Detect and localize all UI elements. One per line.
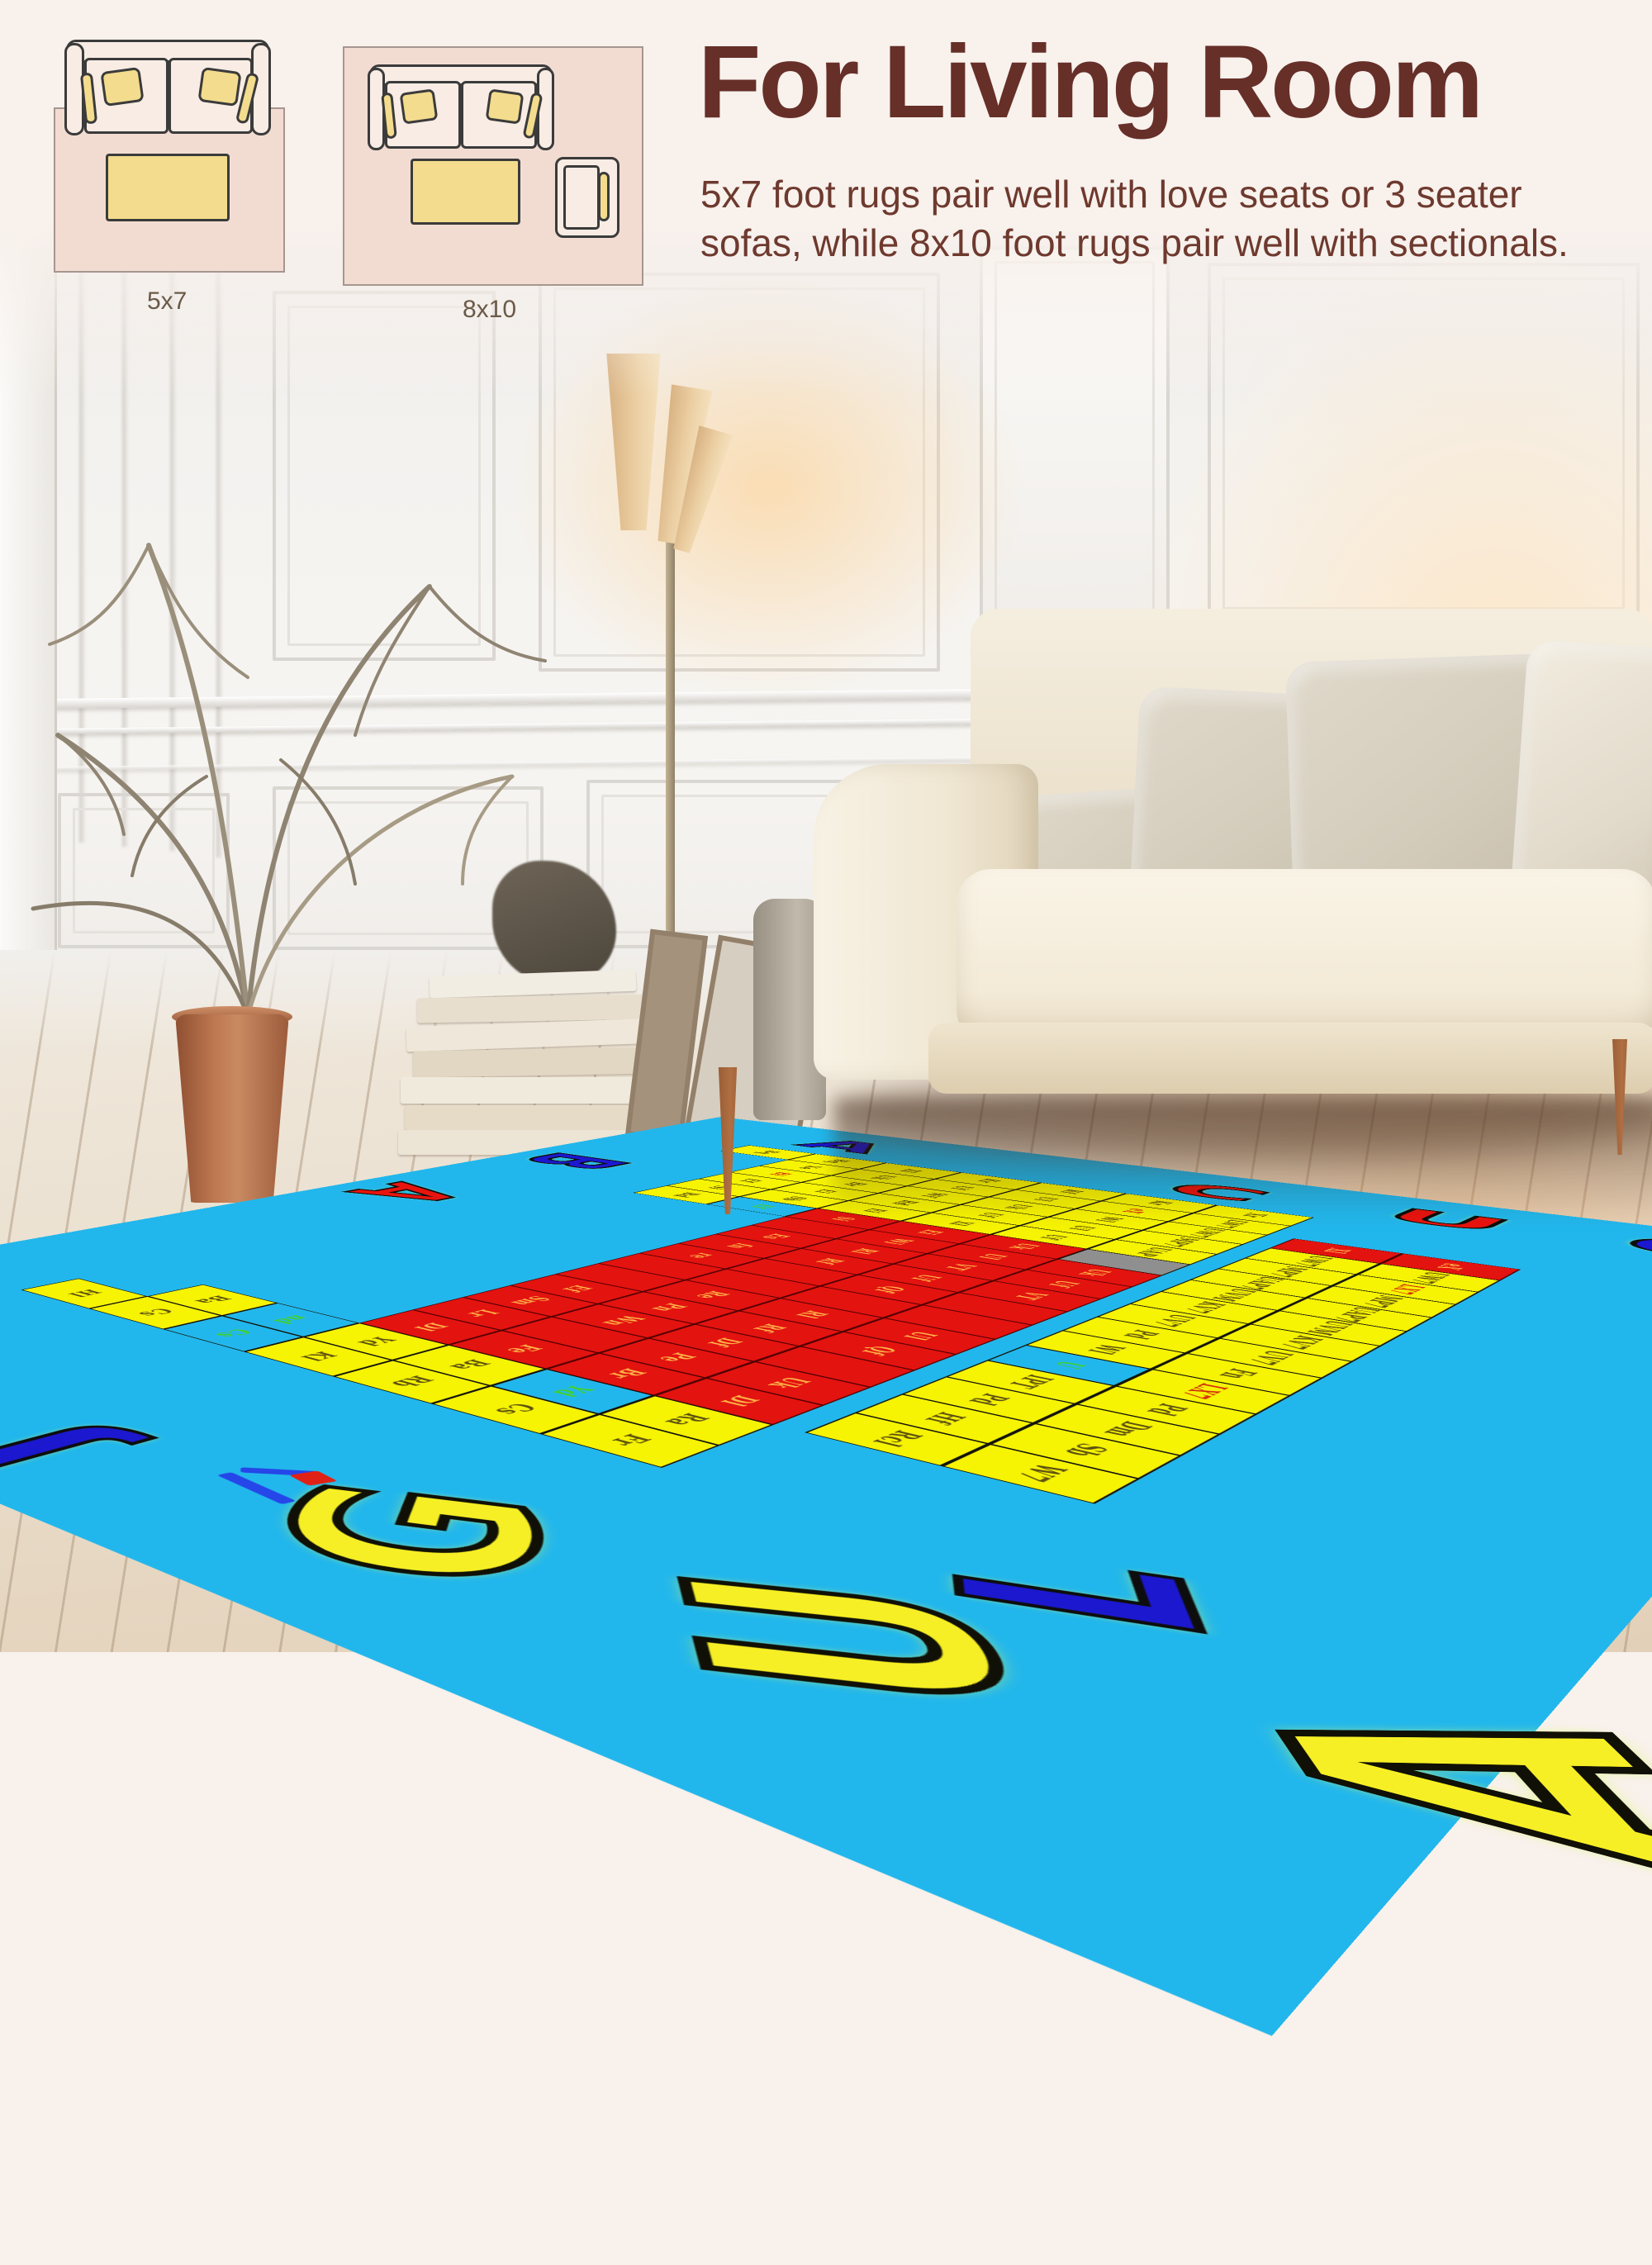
sofa-base (928, 1023, 1652, 1094)
sofa-seat-cushion (957, 869, 1652, 1044)
diagram-coffee-table (411, 159, 520, 225)
rug-alphabet-letter-B: B (503, 1150, 647, 1173)
rug-cell-symbol: Uk (759, 1375, 816, 1390)
rug-cell-symbol: KV7 (1175, 1299, 1232, 1314)
book (417, 995, 653, 1023)
rug-alphabet-letter-A: A (330, 1179, 485, 1207)
book (401, 1077, 661, 1104)
plant-pot (175, 1014, 289, 1203)
rug-cell-symbol: Pe (650, 1351, 701, 1364)
rug-cell-symbol: Pd (1114, 1328, 1165, 1341)
rug-cell-symbol: Fn (1209, 1366, 1264, 1381)
rug-cell-symbol: Wl (1079, 1342, 1131, 1356)
rug-cell-symbol: Uk (1002, 1242, 1044, 1251)
rug-cell-symbol: Dl (406, 1321, 453, 1332)
rug-cell-symbol: Ul (895, 1330, 943, 1342)
description-line-2: sofas, while 8x10 foot rugs pair well wi… (700, 219, 1569, 268)
rug-cell-symbol: Ba (442, 1357, 496, 1372)
diagram-pillow (400, 88, 439, 124)
rug-cell-symbol: Ef (555, 1284, 597, 1294)
rug-cell-symbol: Fe (498, 1342, 548, 1356)
rug-cell-symbol: Cs (131, 1307, 178, 1318)
rug-cell-symbol: Pd (959, 1391, 1016, 1408)
description-text: 5x7 foot rugs pair well with love seats … (700, 170, 1569, 268)
rug-cell-symbol: Df (699, 1336, 748, 1348)
diagram-armchair-bolster (598, 172, 610, 221)
rug-alphabet-letter-J: J (0, 1417, 139, 1483)
rug-cell-symbol: Sb (1054, 1441, 1116, 1460)
rug-cell-symbol: Es (756, 1232, 795, 1241)
rug-cell-symbol: Rf (744, 1322, 791, 1333)
rug-cell-symbol: Bi (764, 1171, 796, 1177)
rug-cell-symbol: Pn (644, 1302, 692, 1313)
page-title: For Living Room (698, 23, 1481, 141)
rug-cell-symbol: Wn (595, 1313, 649, 1327)
rug-cell-symbol: Qf (852, 1344, 903, 1357)
rug-cell-symbol: Lr (458, 1308, 503, 1318)
diagram-pillow (197, 67, 241, 107)
rug-cell-symbol: UV7 (1238, 1348, 1299, 1366)
book (413, 1047, 657, 1077)
rug-cell-symbol: Uk (1071, 1268, 1117, 1278)
rug-cell-symbol: Rl (788, 1309, 833, 1320)
rug-cell-symbol: Ei (911, 1228, 948, 1236)
description-line-1: 5x7 foot rugs pair well with love seats … (700, 170, 1569, 219)
rug-cell-symbol: Ba (188, 1294, 235, 1306)
rug-cell-symbol: Yd (350, 1335, 401, 1348)
diagram-label-8x10: 8x10 (463, 296, 516, 324)
floor-lamp-pole (666, 535, 675, 942)
rug-cell-symbol: Sb (776, 1195, 812, 1202)
rug-cell-symbol: Rl (844, 1247, 884, 1256)
rug-cell-symbol: UAP (1127, 1246, 1176, 1257)
rug-cell-symbol: UV7 (1143, 1313, 1201, 1328)
rug-cell-symbol: Rcl (862, 1427, 929, 1449)
diagram-label-5x7: 5x7 (147, 287, 187, 316)
rug-cell-symbol: re (681, 1251, 720, 1260)
rug-cell-symbol: IPT (999, 1372, 1061, 1390)
rug-cell-symbol: Sm (504, 1294, 555, 1307)
diagram-armchair-seat (563, 165, 600, 230)
book (405, 1105, 661, 1130)
rug-cell-symbol: Bq (752, 1150, 784, 1155)
diagram-pillow (100, 67, 144, 107)
rug-cell-symbol: LX7 (1379, 1283, 1431, 1296)
rug-cell-symbol: eX (1428, 1262, 1471, 1271)
rug-cell-symbol: Kl (293, 1350, 342, 1363)
rug-cell-symbol: Qf (866, 1284, 910, 1294)
rug-cell-symbol: U (1045, 1359, 1091, 1370)
rug-cell-symbol: Ef (744, 1204, 779, 1210)
rug-cell-symbol: VT (1006, 1290, 1053, 1302)
periodic-table-rug: HlBqCsBaBdSiEfBiXeBqCsndEfSbEiBrUkXlKlYd… (0, 1117, 1652, 2036)
rug-cell-symbol: KV7 (1270, 1333, 1329, 1351)
rug-cell-symbol: Hl (62, 1288, 106, 1298)
rug-cell-symbol: Re (688, 1289, 734, 1300)
rug-cell-symbol: Ul (971, 1252, 1012, 1261)
rug-cell-symbol: Yd (544, 1383, 599, 1398)
rug-cell-symbol: Xe (792, 1165, 825, 1170)
rug-cell-symbol: Uf (1041, 1279, 1085, 1289)
rug-cell-symbol: W7 (1004, 1461, 1074, 1485)
rug-cell-symbol: VT (937, 1262, 980, 1272)
header-banner: 5x7 8x10 For Living Room 5x7 foot rugs p… (0, 0, 1652, 396)
rug-cell-symbol: Wi (876, 1237, 918, 1246)
rug-cell-symbol: Rf (808, 1257, 848, 1266)
rug-cell-symbol: Uf (904, 1273, 947, 1283)
rug-cell-symbol: Ef (733, 1178, 766, 1184)
rug-cell-symbol: Hf (914, 1409, 972, 1427)
diagram-pillow (486, 88, 525, 124)
rug-cell-symbol: Rb (382, 1374, 439, 1389)
rug-cell-symbol: Dm (1094, 1418, 1160, 1440)
rug-cell-symbol: Cs (208, 1327, 257, 1340)
rug-cell-symbol: Uf (1033, 1233, 1072, 1242)
rug-cell-symbol: nd (266, 1313, 314, 1325)
rug-cell-symbol: Bd (667, 1191, 705, 1198)
rug-cell-symbol: Pd (1137, 1401, 1194, 1418)
rug-cell-symbol: fn (720, 1242, 758, 1250)
rug-alphabet-letter-G: G (236, 1472, 591, 1602)
rug-cell-symbol: Ul (1062, 1224, 1100, 1232)
rug-cell-symbol: LX7 (1170, 1381, 1235, 1401)
rug-alphabet-letter-A: A (1201, 1679, 1652, 1916)
rug-cell-symbol: Dl (711, 1393, 765, 1408)
test-tube-icon (217, 1472, 297, 1504)
rug-cell-symbol: Cs (487, 1401, 543, 1417)
diagram-coffee-table (106, 154, 230, 221)
rug-cell-symbol: Ra (656, 1411, 715, 1429)
rug-cell-symbol: Xl (1316, 1246, 1355, 1255)
rug-cell-symbol: Br (599, 1366, 652, 1381)
rug-alphabet-letter-O: O (1612, 1233, 1652, 1268)
rug-cell-symbol: Fr (601, 1432, 657, 1449)
